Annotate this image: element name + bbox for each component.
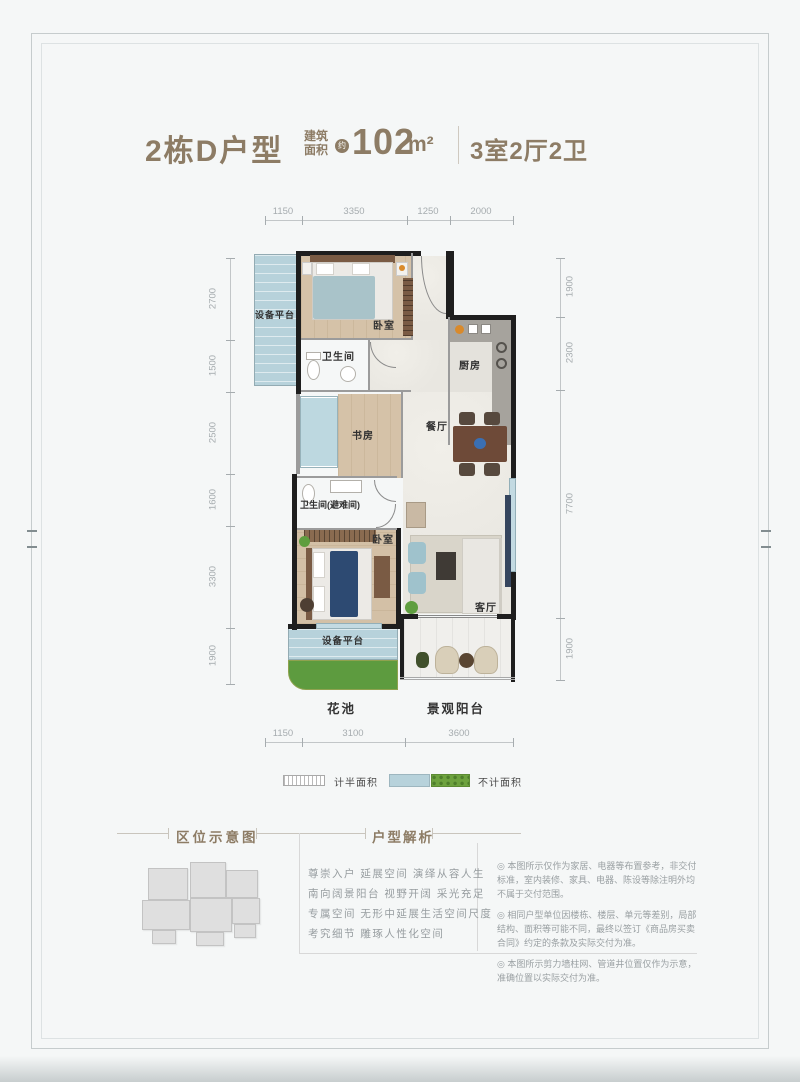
disclaimer-block: ◎ 本图所示仅作为家居、电器等布置参考，非交付标准，室内装修、家具、电器、陈设等… [497,860,697,993]
location-section-title: 区位示意图 [176,826,259,846]
wall-segment [296,394,300,474]
bottom-shadow [0,1056,800,1082]
wall-segment [511,572,516,620]
tv-console-icon [505,495,511,587]
plant-icon [299,536,310,547]
analysis-line: 专属空间 无形中延展生活空间尺度 [308,904,492,924]
flower-bed [288,660,398,690]
kitchen-sink-icon [481,324,491,334]
dining-chair-icon [484,412,500,425]
vanity-icon [330,480,362,493]
pillow-icon [316,263,334,275]
wall-segment [396,528,401,628]
section-divider [299,833,300,953]
room-label-equip-top: 设备平台 [255,308,295,321]
analysis-section-title: 户型解析 [372,826,434,846]
section-rule [257,833,365,834]
analysis-line: 南向阔景阳台 视野开阔 采光充足 [308,884,492,904]
building-footprint [138,856,264,948]
pillow-icon [313,586,325,612]
floorplan-brochure-page: 2栋D户型 建筑 面积 约 102 m² 3室2厅2卫 1150 3350 12… [0,0,800,1082]
legend-green-swatch [431,774,470,787]
footprint-block [196,932,224,946]
room-label-study: 书房 [352,427,374,442]
disclaimer-item: ◎ 相同户型单位因楼栋、楼层、单元等差别，局部结构、面积等可能不同，最终以签订《… [497,909,697,951]
blanket-icon [313,276,375,319]
wall-segment [297,476,397,478]
stove-flame-icon [455,325,464,334]
balcony-railing [400,677,515,680]
pillow-icon [352,263,370,275]
toilet-tank-icon [306,352,321,360]
section-rule [117,833,168,834]
armchair-icon [408,572,426,594]
coffee-table-icon [436,552,456,580]
legend-blue-swatch [389,774,430,787]
wall-segment [511,620,515,682]
wall-segment [497,614,516,619]
burner-icon [496,342,507,353]
sliding-door [418,615,497,618]
legend-half-area-swatch [283,775,325,786]
room-label-equip-bottom: 设备平台 [322,633,364,647]
wall-segment [301,390,411,392]
decor-icon [399,265,405,271]
plant-icon [405,601,418,614]
footprint-block [226,870,258,898]
wardrobe-icon [403,278,413,336]
room-label-balcony: 景观阳台 [427,698,485,717]
room-label-bedroom-top: 卧室 [373,317,395,332]
section-rule [433,833,521,834]
pillow-icon [313,552,325,578]
window-segment [316,623,382,629]
sink-icon [340,366,356,382]
footprint-block [142,900,190,930]
footprint-block [234,924,256,938]
room-label-bath-mid: 卫生间(避难间) [300,498,360,511]
room-label-kitchen: 厨房 [459,357,481,372]
dining-chair-icon [459,463,475,476]
wall-segment [401,392,403,478]
balcony-table-icon [459,653,474,668]
section-rule-tick [365,828,366,839]
footprint-block [232,898,260,924]
room-label-flower-bed: 花池 [327,698,356,717]
centerpiece-icon [474,438,486,449]
wall-segment [446,251,454,319]
stool-icon [300,598,314,612]
analysis-line: 尊崇入户 延展空间 演绎从容人生 [308,864,492,884]
wall-segment [288,624,316,629]
room-label-bedroom-bottom: 卧室 [372,531,394,546]
blanket-icon [330,551,358,617]
disclaimer-item: ◎ 本图所示剪力墙柱网、管道井位置仅作为示意，准确位置以实际交付为准。 [497,958,697,986]
footprint-block [148,868,188,900]
study-bay-window [300,396,338,468]
console-table-icon [406,502,426,528]
armchair-icon [408,542,426,564]
plant-icon [416,652,429,668]
toilet-icon [307,360,320,380]
dresser-icon [374,556,390,598]
section-rule-tick [168,828,169,839]
analysis-text: 尊崇入户 延展空间 演绎从容人生 南向阔景阳台 视野开阔 采光充足 专属空间 无… [308,864,492,944]
wall-segment [301,338,413,340]
kitchen-sink-icon [468,324,478,334]
disclaimer-item: ◎ 本图所示仅作为家居、电器等布置参考，非交付标准，室内装修、家具、电器、陈设等… [497,860,697,902]
wardrobe-icon [304,530,376,542]
balcony-chair-icon [435,646,459,674]
dining-chair-icon [459,412,475,425]
legend-half-area-label: 计半面积 [334,774,378,789]
wall-segment [400,619,404,680]
balcony-chair-icon [474,646,498,674]
wall-segment [292,474,297,630]
legend-no-area-label: 不计面积 [478,774,522,789]
room-label-dining: 餐厅 [426,418,448,433]
footprint-block [152,930,176,944]
burner-icon [496,358,507,369]
nightstand-icon [302,262,312,275]
room-label-bath-top: 卫生间 [322,348,355,363]
wall-segment [511,315,516,478]
analysis-line: 考究细节 雕琢人性化空间 [308,924,492,944]
floor-plan: 设备平台 卧室 卫生间 厨房 书房 餐厅 卫生间(避难间) 卧室 客厅 设备平台… [0,0,800,760]
footprint-block [190,862,226,898]
room-label-living: 客厅 [475,599,497,614]
wall-segment [296,251,301,394]
dining-chair-icon [484,463,500,476]
footprint-block [190,898,232,932]
